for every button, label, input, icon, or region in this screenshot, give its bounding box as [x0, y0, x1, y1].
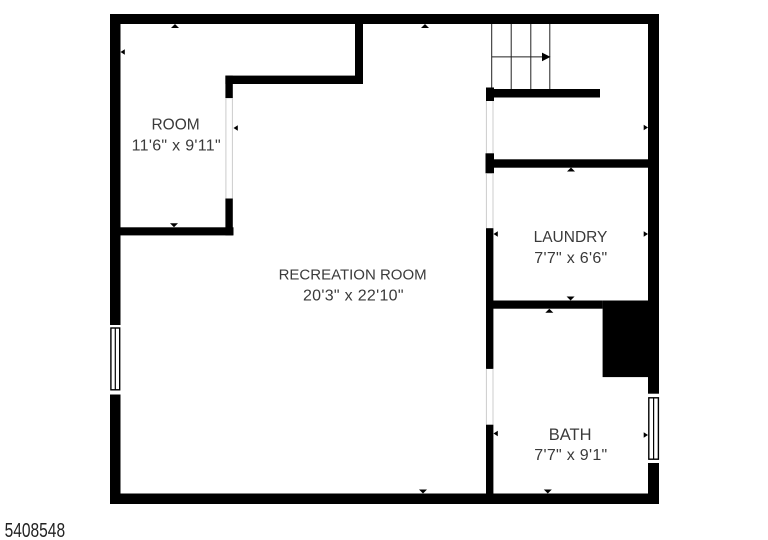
svg-text:ROOM: ROOM: [151, 116, 199, 133]
svg-text:BATH: BATH: [549, 426, 592, 444]
svg-text:RECREATION ROOM: RECREATION ROOM: [279, 267, 427, 284]
svg-text:5408548: 5408548: [5, 520, 66, 540]
svg-text:7'7" x 6'6": 7'7" x 6'6": [534, 250, 607, 267]
svg-text:11'6" x 9'11": 11'6" x 9'11": [132, 137, 221, 154]
svg-text:LAUNDRY: LAUNDRY: [534, 229, 608, 246]
svg-text:20'3" x 22'10": 20'3" x 22'10": [303, 288, 404, 305]
svg-text:7'7" x 9'1": 7'7" x 9'1": [534, 447, 607, 464]
